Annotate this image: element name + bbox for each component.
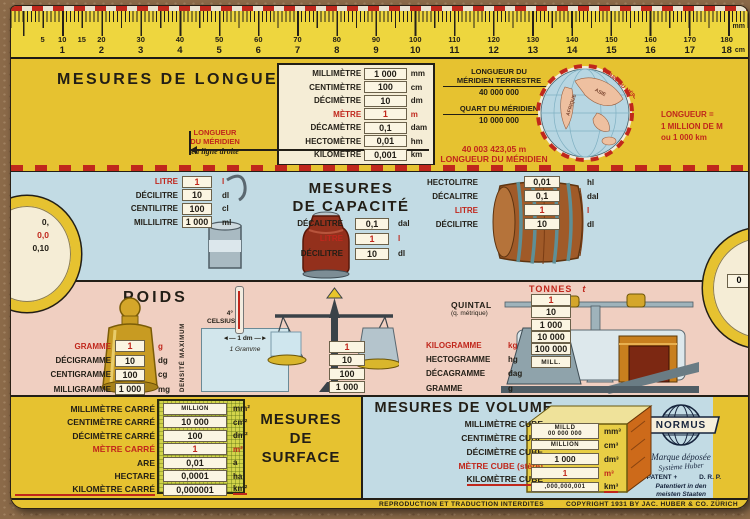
balance-values-window[interactable]: 1 10 100 1 000 xyxy=(329,340,367,394)
ruler-ticks xyxy=(11,11,748,36)
unit-symbol: dl xyxy=(587,220,594,229)
unit-value: 0,0001 xyxy=(163,470,227,482)
surface-row: MILLIMÈTRE CARRÉ MILLION mm² xyxy=(15,402,250,416)
ruler-cm-label: 17 xyxy=(684,45,695,56)
capacity-can-table: DÉCALITRE 0,1 dal LITRE 1 l DÉCILITRE 10… xyxy=(261,216,410,261)
ruler-mm-label: 15 xyxy=(78,35,86,44)
ruler-mm-label: 90 xyxy=(372,35,380,44)
ruler-mm-label: 50 xyxy=(215,35,223,44)
unit-symbol: dam xyxy=(411,123,430,132)
ruler-cm-label: 9 xyxy=(373,45,378,56)
unit-symbol: g xyxy=(508,384,513,393)
unit-label: HECTOLITRE xyxy=(416,178,478,187)
ruler-cm-label: 7 xyxy=(295,45,300,56)
unit-value: 1 xyxy=(115,340,145,352)
ruler-mm-label: 5 xyxy=(41,35,45,44)
surface-title: MESURES DE SURFACE xyxy=(251,410,351,467)
weight-row: CENTIGRAMME 100 cg xyxy=(15,368,170,382)
unit-value: 0,1 xyxy=(364,122,407,134)
unit-value: 10 xyxy=(524,218,560,230)
unit-value: 1 xyxy=(531,294,571,306)
unit-symbol: hm xyxy=(411,137,430,146)
unit-value: 0,01 xyxy=(364,135,407,147)
surface-row: MÈTRE CARRÉ 1 m² xyxy=(15,443,250,457)
ruler-cm-label: 4 xyxy=(177,45,182,56)
ruler-mm-label: 20 xyxy=(97,35,105,44)
unit-symbol: hl xyxy=(587,178,594,187)
unit-symbol: a xyxy=(233,458,237,467)
volume-label-row: CENTIMÈTRE CUBE xyxy=(379,431,543,445)
unit-symbol: g xyxy=(158,342,163,351)
ruler-unit-mm: mm xyxy=(733,23,745,30)
quintal-sub: (q. métrique) xyxy=(451,310,492,317)
capacity-row: DÉCALITRE 0,1 dal xyxy=(261,216,410,231)
balance-value-row: 1 xyxy=(329,340,367,354)
ruler-mm-label: 150 xyxy=(605,35,618,44)
unit-symbol: cg xyxy=(158,370,167,379)
temp-unit: CELSIUS xyxy=(207,318,233,326)
globe-icon: AFRIQUE ASIE QUART DU MÉRIDIEN xyxy=(535,61,635,163)
normus-drp: D. R. P. xyxy=(699,474,721,481)
unit-label: CENTIMÈTRE CARRÉ xyxy=(15,417,155,427)
right-note-line2: 1 MILLION DE M xyxy=(661,121,723,133)
unit-label: MILLILITRE xyxy=(66,218,178,227)
capacity-row: CENTILITRE 100 cl xyxy=(66,202,231,216)
meridian-left-caption: LONGUEUR DU MÉRIDIEN en ligne droite xyxy=(161,129,269,157)
unit-symbol: dl xyxy=(398,249,405,258)
unit-label: HECTOGRAMME xyxy=(426,355,504,364)
capacity-row: DÉCILITRE 10 dl xyxy=(261,246,410,261)
unit-value: 1 xyxy=(531,467,599,480)
cutout-value: 0, xyxy=(17,216,49,229)
unit-value: 0,1 xyxy=(355,218,389,230)
volume-label-row: MILLIMÈTRE CUBE xyxy=(379,417,543,431)
unit-symbol: m² xyxy=(233,445,243,454)
ruler-mm-label: 180 xyxy=(720,35,733,44)
surface-title-line3: SURFACE xyxy=(251,448,351,467)
celsius-label: 4° CELSIUS xyxy=(207,310,233,325)
unit-symbol: l xyxy=(587,206,589,215)
length-table-window: MILLIMÈTRE 1 000 mm CENTIMÈTRE 100 cm DÉ… xyxy=(277,63,435,166)
ruler-mm-label: 30 xyxy=(137,35,145,44)
ruler-mm-labels: 5101520304050607080901001101201301401501… xyxy=(11,35,748,45)
weight-row: KILOGRAMME kg xyxy=(426,338,522,352)
length-row: KILOMÈTRE 0,001 km xyxy=(282,148,430,162)
unit-value: 0,01 xyxy=(163,457,227,469)
tonnes-values-window[interactable]: 1 10 1 000 10 000 100 000 xyxy=(531,295,571,369)
capacity-row: LITRE 1 l xyxy=(261,231,410,246)
ruler-cm-label: 13 xyxy=(528,45,539,56)
unit-value: 10 xyxy=(329,354,365,366)
length-row: CENTIMÈTRE 100 cm xyxy=(282,81,430,95)
unit-value: 10 xyxy=(531,306,571,318)
ruler-mm-label: 70 xyxy=(293,35,301,44)
unit-value: 100 xyxy=(329,368,365,380)
ruler-mm-label: 100 xyxy=(409,35,422,44)
ruler-mm-label: 170 xyxy=(684,35,697,44)
unit-value: 10 xyxy=(355,248,389,260)
unit-symbol: cm² xyxy=(233,418,247,427)
weight-row: GRAMME g xyxy=(426,381,522,395)
unit-label: DÉCILITRE xyxy=(66,191,178,200)
unit-value: MILLION xyxy=(163,403,227,415)
unit-value: 1 000 xyxy=(364,68,407,80)
ruler-mm-label: 160 xyxy=(644,35,657,44)
ruler-cm-label: 11 xyxy=(449,45,459,56)
unit-label: LITRE xyxy=(261,234,343,243)
unit-label: DÉCALITRE xyxy=(261,219,343,228)
capacity-row: MILLILITRE 1 000 ml xyxy=(66,216,231,230)
section-length: MESURES DE LONGUEUR MILLIMÈTRE 1 000 mm … xyxy=(11,59,748,165)
unit-symbol: dal xyxy=(398,219,410,228)
unit-symbol: ha xyxy=(233,472,242,481)
section-bottom: MILLIMÈTRE CARRÉ MILLION mm² CENTIMÈTRE … xyxy=(11,397,748,498)
unit-symbol: cm xyxy=(411,83,430,92)
unit-symbol: dm³ xyxy=(604,455,619,464)
capacity-barrel-table: HECTOLITRE 0,01 hl DÉCALITRE 0,1 dal LIT… xyxy=(416,175,599,231)
unit-symbol: mm² xyxy=(233,404,250,413)
section-capacity: MESURES DE CAPACITÉ LITRE 1 l xyxy=(11,172,748,282)
unit-label: CENTIGRAMME xyxy=(15,370,111,379)
unit-symbol: m xyxy=(411,110,430,119)
unit-symbol: m³ xyxy=(604,469,614,478)
unit-value: 0,000001 xyxy=(163,484,227,496)
unit-label: GRAMME xyxy=(426,384,504,393)
unit-symbol: mg xyxy=(158,385,170,394)
length-right-note: LONGUEUR = 1 MILLION DE M ou 1 000 km xyxy=(661,109,723,144)
unit-label: LITRE xyxy=(66,177,178,186)
unit-value: 1 xyxy=(329,341,365,353)
unit-label: MÈTRE CARRÉ xyxy=(15,444,155,454)
unit-value: 1 000 xyxy=(182,216,212,228)
thermometer-icon xyxy=(235,286,244,334)
unit-value: 1 xyxy=(364,108,407,120)
cutout-value: 0,10 xyxy=(17,242,49,255)
ruler-cm-label: 18 xyxy=(721,45,732,56)
unit-label: ARE xyxy=(15,458,155,468)
unit-value: MILL. xyxy=(531,356,571,368)
volume-row: MILLD00 000 000 mm³ xyxy=(531,424,621,438)
unit-symbol: dm² xyxy=(233,431,248,440)
volume-label-row: DÉCIMÈTRE CUBE xyxy=(379,445,543,459)
weight-row: GRAMME 1 g xyxy=(15,339,170,353)
unit-symbol: cm³ xyxy=(604,441,618,450)
unit-label: CENTILITRE xyxy=(66,204,178,213)
unit-label: MÈTRE xyxy=(282,110,361,119)
ruler-cm-label: 12 xyxy=(488,45,499,56)
tonne-value-row: MILL. xyxy=(531,357,571,369)
ruler-mm-label: 80 xyxy=(333,35,341,44)
surface-row: DÉCIMÈTRE CARRÉ 100 dm² xyxy=(15,429,250,443)
ruler-unit-cm: cm xyxy=(735,47,745,54)
temp-value: 4° xyxy=(207,310,233,318)
gram-table: GRAMME 1 g DÉCIGRAMME 10 dg CENTIGRAMME … xyxy=(15,339,170,397)
ruler-mm-label: 110 xyxy=(448,35,460,44)
unit-value: 1 xyxy=(355,233,389,245)
unit-label: DÉCALITRE xyxy=(416,192,478,201)
quintal-label: QUINTAL (q. métrique) xyxy=(451,300,492,317)
unit-value: 0,01 xyxy=(524,176,560,188)
unit-label: MILLIMÈTRE CARRÉ xyxy=(15,404,155,414)
weight-row: DÉCIGRAMME 10 dg xyxy=(15,353,170,367)
ruler-cm-label: 8 xyxy=(334,45,339,56)
unit-label: CENTIMÈTRE xyxy=(282,83,361,92)
weight-row: MILLIGRAMME 1 000 mg xyxy=(15,382,170,396)
length-row: DÉCIMÈTRE 10 dm xyxy=(282,94,430,108)
unit-value: 100 xyxy=(182,203,212,215)
density-side-label: DENSITÉ MAXIMUM xyxy=(180,323,186,392)
surface-title-line1: MESURES xyxy=(251,410,351,429)
unit-symbol: hg xyxy=(508,355,518,364)
unit-label: KILOGRAMME xyxy=(426,341,504,350)
unit-value: 100 xyxy=(364,81,407,93)
unit-symbol: km xyxy=(411,150,430,159)
unit-value: 1 000 xyxy=(115,383,145,395)
ruler-mm-label: 140 xyxy=(566,35,579,44)
ruler-cm-label: 15 xyxy=(606,45,617,56)
capacity-row: HECTOLITRE 0,01 hl xyxy=(416,175,599,189)
ruler-cm-label: 2 xyxy=(99,45,104,56)
section-weights: POIDS GRAMME 1 g xyxy=(11,282,748,397)
unit-symbol: dag xyxy=(508,369,522,378)
capacity-row: LITRE 1 l xyxy=(416,203,599,217)
ruler-mm-label: 130 xyxy=(527,35,540,44)
volume-row: MILLION cm³ xyxy=(531,438,621,452)
photo-background: 5101520304050607080901001101201301401501… xyxy=(0,0,750,519)
length-row: DÉCAMÈTRE 0,1 dam xyxy=(282,121,430,135)
volume-cube-window[interactable]: MILLD00 000 000 mm³ MILLION cm³ 1 000 dm… xyxy=(531,424,621,494)
left-cutout-values: 0,0,00,10 xyxy=(17,216,49,255)
unit-value: 1 000 xyxy=(531,453,599,466)
length-row: MÈTRE 1 m xyxy=(282,108,430,122)
unit-label: DÉCIMÈTRE CARRÉ xyxy=(15,431,155,441)
unit-symbol: cl xyxy=(222,204,229,213)
unit-value: MILLD00 000 000 xyxy=(531,423,599,439)
surface-row: CENTIMÈTRE CARRÉ 10 000 cm² xyxy=(15,416,250,430)
right-cutout-value: 0 xyxy=(727,274,749,288)
red-yellow-checker-strip xyxy=(11,165,748,172)
unit-label: KILOMÈTRE xyxy=(282,150,361,159)
unit-value: 10 xyxy=(364,95,407,107)
unit-label: DÉCILITRE xyxy=(416,220,478,229)
unit-symbol: km² xyxy=(233,484,247,495)
length-row: HECTOMÈTRE 0,01 hm xyxy=(282,135,430,149)
unit-value: 0,001 xyxy=(364,149,407,161)
volume-row: 1 000 dm³ xyxy=(531,452,621,466)
ruler-mm-label: 60 xyxy=(254,35,262,44)
unit-symbol: ml xyxy=(222,218,231,227)
unit-symbol: l xyxy=(398,234,400,243)
right-note-line1: LONGUEUR = xyxy=(661,109,723,121)
unit-value: 0,1 xyxy=(524,190,560,202)
ruler-cm-label: 14 xyxy=(567,45,578,56)
ruler-cm-labels: 123456789101112131415161718 xyxy=(11,45,748,55)
weight-row: HECTOGRAMME hg xyxy=(426,352,522,366)
ruler-cm-label: 6 xyxy=(256,45,261,56)
unit-value: 1 000 xyxy=(531,319,571,331)
capacity-row: DÉCILITRE 10 dl xyxy=(66,189,231,203)
ruler-cm-label: 5 xyxy=(216,45,221,56)
capacity-row: LITRE 1 l xyxy=(66,175,231,189)
unit-label: MILLIGRAMME xyxy=(15,385,111,394)
unit-symbol: l xyxy=(222,177,224,186)
unit-label: KILOMÈTRE CARRÉ xyxy=(15,484,155,496)
unit-label: MILLIMÈTRE xyxy=(282,69,361,78)
ruler-mm-label: 120 xyxy=(487,35,500,44)
unit-value: 1 xyxy=(163,443,227,455)
quintal-name: QUINTAL xyxy=(451,300,492,310)
ruler-mm-label: 10 xyxy=(58,35,66,44)
capacity-row: DÉCALITRE 0,1 dal xyxy=(416,189,599,203)
unit-value: MILLION xyxy=(531,440,599,450)
cutout-value: 0,0 xyxy=(17,229,49,242)
unit-value: 1 xyxy=(524,204,560,216)
unit-value: 10 000 xyxy=(531,331,571,343)
volume-row: 1 m³ xyxy=(531,466,621,480)
surface-table: MILLIMÈTRE CARRÉ MILLION mm² CENTIMÈTRE … xyxy=(15,402,250,497)
unit-label: GRAMME xyxy=(15,342,111,351)
volume-label-row: KILOMÈTRE CUBE xyxy=(379,473,543,487)
ruler-mm-label: 40 xyxy=(176,35,184,44)
surface-title-line2: DE xyxy=(251,429,351,448)
unit-symbol: mm xyxy=(411,69,430,78)
meridian-caption-line2: DU MÉRIDIEN xyxy=(161,138,269,147)
unit-symbol: dal xyxy=(587,192,599,201)
unit-symbol: mm³ xyxy=(604,427,621,436)
unit-value: 10 xyxy=(115,355,145,367)
unit-label: DÉCIGRAMME xyxy=(15,356,111,365)
balance-value-row: 1 000 xyxy=(329,381,367,395)
unit-symbol: kg xyxy=(508,341,517,350)
volume-labels: MILLIMÈTRE CUBE CENTIMÈTRE CUBE DÉCIMÈTR… xyxy=(379,417,543,487)
copyright-notice: COPYRIGHT 1931 BY JAC. HUBER & CO. ZÜRIC… xyxy=(566,501,738,508)
unit-value: 100 xyxy=(115,369,145,381)
kilogram-table: KILOGRAMME kg HECTOGRAMME hg DÉCAGRAMME … xyxy=(426,338,522,396)
surface-row: HECTARE 0,0001 ha xyxy=(15,470,250,484)
unit-value: ,000,000,001 xyxy=(531,482,599,492)
unit-symbol: dg xyxy=(158,356,168,365)
unit-label: DÉCAMÈTRE xyxy=(282,123,361,132)
normus-conversion-card: 5101520304050607080901001101201301401501… xyxy=(10,5,749,509)
length-row: MILLIMÈTRE 1 000 mm xyxy=(282,67,430,81)
unit-symbol: km³ xyxy=(604,482,618,493)
unit-value: 1 000 xyxy=(329,381,365,393)
unit-label: LITRE xyxy=(416,206,478,215)
volume-label-row: MÈTRE CUBE (stère) xyxy=(379,459,543,473)
unit-value: 100 000 xyxy=(531,343,571,355)
unit-symbol: dl xyxy=(222,191,229,200)
ruler-cm-label: 16 xyxy=(645,45,656,56)
ruler-cm-label: 3 xyxy=(138,45,143,56)
unit-value: 10 000 xyxy=(163,416,227,428)
unit-label: DÉCIMÈTRE xyxy=(282,96,361,105)
unit-label: HECTARE xyxy=(15,471,155,481)
capacity-title-line1: MESURES xyxy=(273,180,429,198)
weight-row: DÉCAGRAMME dag xyxy=(426,367,522,381)
unit-value: 1 xyxy=(182,176,212,188)
capacity-row: DÉCILITRE 10 dl xyxy=(416,217,599,231)
ruler: 5101520304050607080901001101201301401501… xyxy=(11,11,748,59)
unit-label: HECTOMÈTRE xyxy=(282,137,361,146)
volume-row: ,000,000,001 km³ xyxy=(531,480,621,494)
reproduction-notice: REPRODUCTION ET TRADUCTION INTERDITES xyxy=(379,501,544,508)
unit-symbol: dm xyxy=(411,96,430,105)
capacity-cup-table: LITRE 1 l DÉCILITRE 10 dl CENTILITRE 100… xyxy=(66,175,231,229)
surface-row: KILOMÈTRE CARRÉ 0,000001 km² xyxy=(15,483,250,497)
length-title: MESURES DE LONGUEUR xyxy=(57,71,306,89)
balance-value-row: 100 xyxy=(329,367,367,381)
surface-row: ARE 0,01 a xyxy=(15,456,250,470)
balance-value-row: 10 xyxy=(329,354,367,368)
ruler-cm-label: 1 xyxy=(60,45,65,56)
unit-value: 10 xyxy=(182,189,212,201)
unit-label: DÉCILITRE xyxy=(261,249,343,258)
ruler-cm-label: 10 xyxy=(410,45,421,56)
right-note-line3: ou 1 000 km xyxy=(661,132,723,144)
unit-label: DÉCAGRAMME xyxy=(426,369,504,378)
unit-value: 100 xyxy=(163,430,227,442)
